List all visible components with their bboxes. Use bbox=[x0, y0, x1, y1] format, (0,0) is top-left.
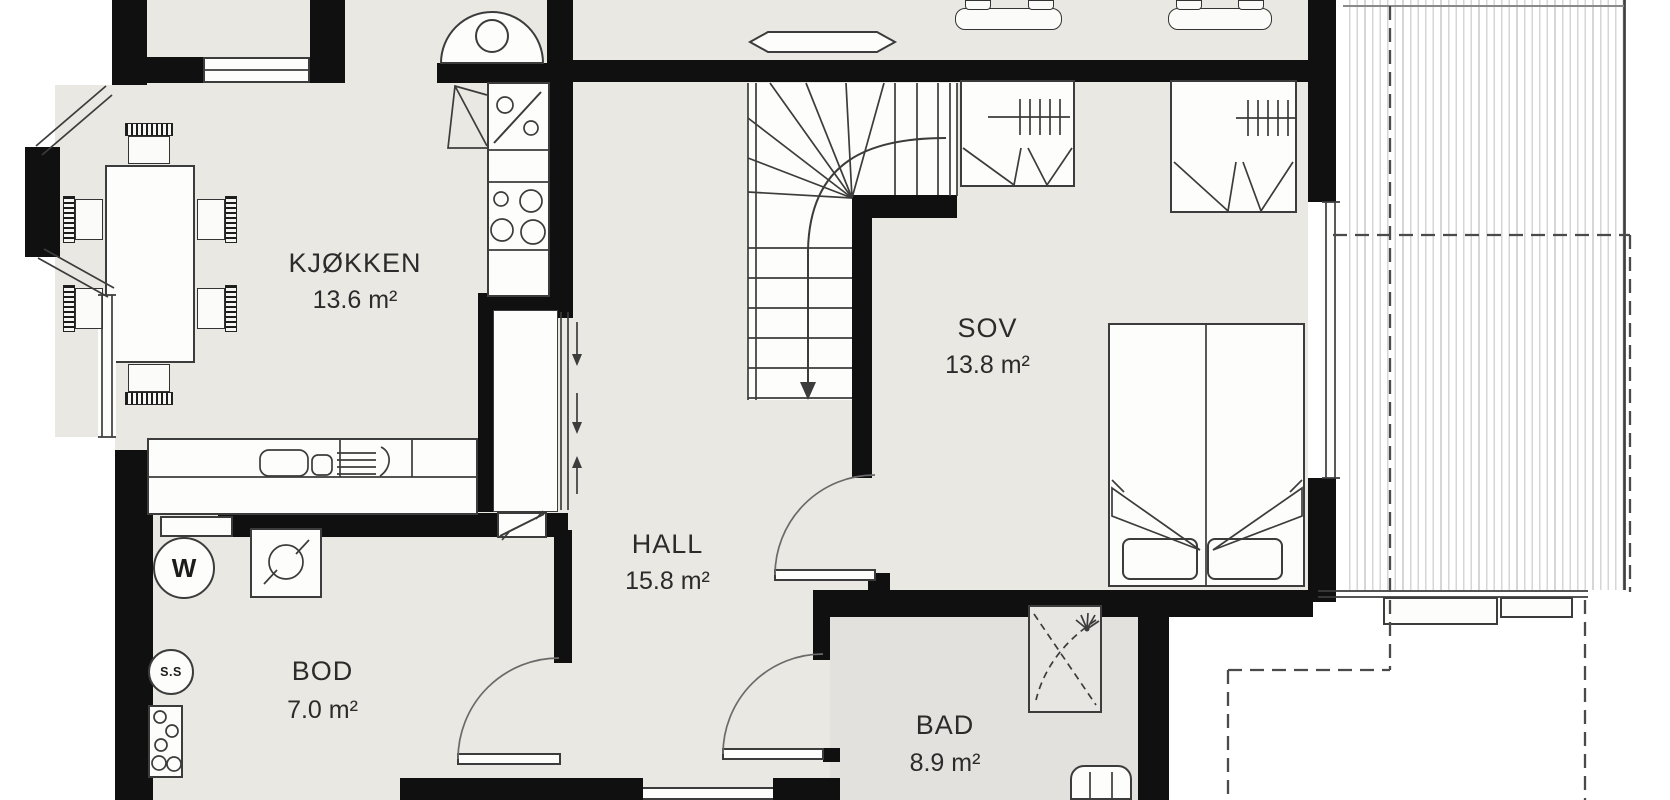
chair-back bbox=[225, 285, 237, 332]
wall-bad-east bbox=[1138, 617, 1169, 800]
chair-arm bbox=[1176, 0, 1202, 10]
outside-bottom-right bbox=[1169, 617, 1670, 800]
chair bbox=[1168, 8, 1272, 30]
room-label-bod: BOD bbox=[250, 656, 395, 687]
wall-top bbox=[553, 60, 1335, 82]
wall bbox=[310, 0, 345, 83]
floor-drain-label: S.S bbox=[160, 665, 182, 679]
chair-seat bbox=[128, 364, 170, 392]
kitchen-appliance-column bbox=[487, 82, 550, 297]
chair-back bbox=[63, 285, 75, 332]
window-below-deck bbox=[1383, 597, 1498, 625]
wall-niche bbox=[160, 516, 233, 537]
wall bbox=[147, 57, 203, 83]
wall-bod-east bbox=[554, 530, 572, 663]
wall-south bbox=[773, 778, 840, 800]
room-area-bod: 7.0 m² bbox=[245, 696, 400, 725]
wall-kitchen-east bbox=[547, 0, 573, 293]
wall-sov-east-upper bbox=[1308, 0, 1336, 202]
pipe-box bbox=[148, 705, 183, 778]
room-label-sov: SOV bbox=[920, 313, 1055, 344]
chair-back bbox=[63, 196, 75, 243]
bed-pillow bbox=[1122, 538, 1198, 580]
room-area-bad: 8.9 m² bbox=[865, 749, 1025, 778]
wall-closet-west bbox=[478, 293, 493, 512]
kitchen-sink-counter bbox=[147, 438, 478, 515]
deck-terrace bbox=[1343, 0, 1625, 590]
chair-seat bbox=[75, 288, 103, 329]
outside-bottom-left bbox=[0, 437, 115, 800]
chair-back bbox=[125, 392, 173, 405]
window-top bbox=[203, 57, 310, 83]
wall bbox=[112, 0, 147, 85]
window-below-deck bbox=[1500, 597, 1573, 618]
shower bbox=[1028, 605, 1102, 713]
toilet-cistern bbox=[1070, 765, 1132, 800]
room-area-hall: 15.8 m² bbox=[590, 567, 745, 596]
window-strip bbox=[1322, 202, 1340, 478]
chair-seat bbox=[197, 199, 225, 240]
dining-table bbox=[105, 165, 195, 363]
bed-pillow bbox=[1207, 538, 1283, 580]
room-label-hall: HALL bbox=[595, 529, 740, 560]
chair-arm bbox=[965, 0, 991, 10]
wall-sov-east-lower bbox=[1308, 478, 1336, 602]
floor-plan: W S.S bbox=[0, 0, 1670, 800]
wardrobe bbox=[960, 80, 1075, 187]
wall bbox=[437, 63, 553, 83]
tumble-dryer bbox=[250, 528, 322, 598]
wardrobe bbox=[1170, 80, 1297, 213]
room-label-bad: BAD bbox=[870, 710, 1020, 741]
chair-arm bbox=[1238, 0, 1264, 10]
outside-top-left bbox=[0, 0, 112, 85]
chair-back bbox=[225, 196, 237, 243]
room-label-kjokken: KJØKKEN bbox=[255, 248, 455, 279]
wall-south bbox=[400, 778, 643, 800]
wall-hall-sov bbox=[852, 195, 872, 478]
entrance-threshold bbox=[643, 787, 773, 800]
wall-bad-west bbox=[813, 590, 830, 660]
chair-back bbox=[125, 123, 173, 136]
wall-bay-pier bbox=[25, 147, 60, 257]
chair-arm bbox=[1028, 0, 1054, 10]
water-heater: W bbox=[153, 537, 215, 599]
wall-jamb bbox=[823, 748, 840, 762]
room-area-sov: 13.8 m² bbox=[915, 351, 1060, 380]
room-area-kjokken: 13.6 m² bbox=[255, 286, 455, 315]
water-heater-label: W bbox=[172, 553, 197, 584]
electrical-cabinet bbox=[497, 512, 547, 538]
floor-drain: S.S bbox=[148, 649, 194, 695]
chair-seat bbox=[197, 288, 225, 329]
closet-interior bbox=[493, 310, 558, 512]
chair-seat bbox=[128, 136, 170, 164]
chair-seat bbox=[75, 199, 103, 240]
chair bbox=[955, 8, 1062, 30]
deck-top-edge bbox=[1343, 5, 1625, 7]
